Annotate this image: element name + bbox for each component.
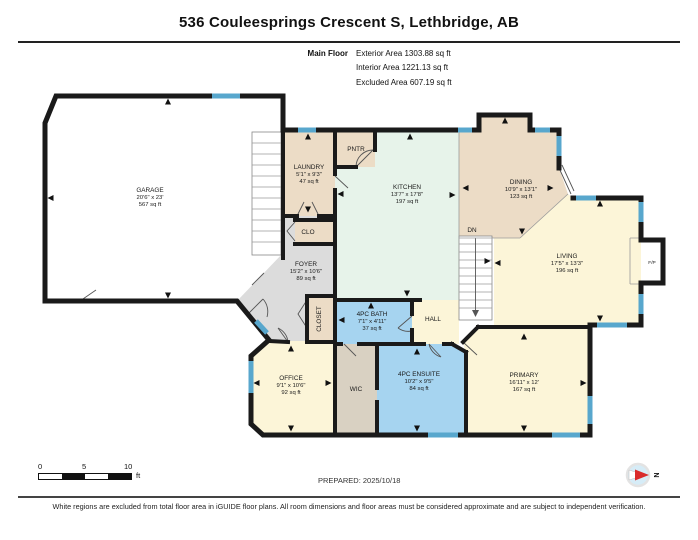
living-label: LIVING — [557, 253, 578, 260]
kitchen-area: 197 sq ft — [396, 199, 419, 205]
stairs-garage — [252, 132, 281, 255]
footer-divider — [18, 496, 680, 498]
prepared-date: PREPARED: 2025/10/18 — [318, 476, 400, 485]
room-garage — [45, 96, 283, 301]
primary-area: 167 sq ft — [513, 387, 536, 393]
laundry-dims: 5'1" x 9'3" — [296, 172, 322, 178]
bath-area: 37 sq ft — [362, 326, 382, 332]
hall-label: HALL — [425, 316, 441, 323]
clo-label: CLO — [301, 229, 314, 236]
area-stats: Exterior Area 1303.88 sq ft Interior Are… — [356, 49, 452, 92]
scale-unit: ft — [136, 471, 140, 480]
pantry-label: PNTR — [347, 146, 365, 153]
office-label: OFFICE — [279, 375, 302, 382]
garage-area: 567 sq ft — [139, 202, 162, 208]
dining-dims: 10'9" x 13'1" — [505, 187, 537, 193]
compass-icon: N — [618, 458, 670, 492]
bath-label: 4PC BATH — [357, 311, 388, 318]
laundry-area: 47 sq ft — [299, 179, 319, 185]
wic-label: WIC — [350, 386, 363, 393]
stairs-dn — [459, 236, 492, 320]
foyer-label: FOYER — [295, 261, 317, 268]
disclaimer-text: White regions are excluded from total fl… — [0, 502, 698, 511]
kitchen-dims: 13'7" x 17'8" — [391, 192, 423, 198]
laundry-label: LAUNDRY — [294, 164, 325, 171]
scale-bar-segments — [38, 473, 132, 480]
living-area: 196 sq ft — [556, 268, 579, 274]
garage-dims: 20'6" x 23' — [137, 195, 164, 201]
bath-dims: 7'1" x 4'11" — [358, 319, 387, 325]
ensuite-dims: 10'2" x 9'5" — [404, 379, 433, 385]
interior-area: Interior Area 1221.13 sq ft — [356, 63, 452, 77]
kitchen-label: KITCHEN — [393, 184, 421, 191]
office-area: 92 sq ft — [281, 390, 301, 396]
dining-area: 123 sq ft — [510, 194, 533, 200]
foyer-dims: 15'2" x 10'6" — [290, 269, 322, 275]
fireplace-label: F/P — [648, 260, 655, 266]
scale-bar: 0 5 10 ft — [38, 462, 158, 480]
dining-label: DINING — [510, 179, 532, 186]
office-dims: 9'1" x 10'6" — [276, 383, 305, 389]
living-dims: 17'5" x 13'3" — [551, 261, 583, 267]
primary-dims: 16'11" x 12' — [509, 380, 539, 386]
scale-tick-10: 10 — [124, 462, 132, 471]
closet-label: CLOSET — [316, 306, 323, 332]
scale-tick-5: 5 — [82, 462, 86, 471]
compass-north-label: N — [652, 472, 659, 477]
scale-tick-0: 0 — [38, 462, 42, 471]
title-divider — [18, 41, 680, 43]
floor-label: Main Floor — [262, 49, 348, 58]
dn-label: DN — [467, 227, 477, 234]
foyer-area: 89 sq ft — [296, 276, 316, 282]
garage-label: GARAGE — [136, 187, 163, 194]
floorplan-drawing: GARAGE 20'6" x 23' 567 sq ft LAUNDRY 5'1… — [0, 88, 698, 460]
page-title: 536 Couleesprings Crescent S, Lethbridge… — [0, 14, 698, 31]
exterior-area: Exterior Area 1303.88 sq ft — [356, 49, 452, 63]
floorplan-page: 536 Couleesprings Crescent S, Lethbridge… — [0, 0, 698, 540]
primary-label: PRIMARY — [509, 372, 539, 379]
ensuite-label: 4PC ENSUITE — [398, 371, 440, 378]
ensuite-area: 84 sq ft — [409, 386, 429, 392]
